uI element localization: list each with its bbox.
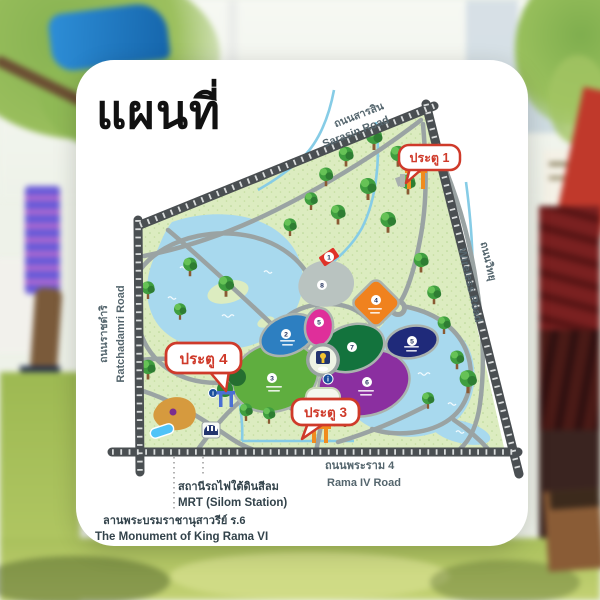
map-card: i i [76,60,528,546]
svg-text:8: 8 [320,282,324,289]
screenshot-root: { "title": "แผนที่", "map": { "roads": {… [0,0,600,600]
svg-text:i: i [212,391,214,398]
zone-number-marker: 5 [314,317,324,327]
zone-number-marker: 7 [347,342,357,352]
info-icon-2: i [209,389,218,398]
zone-number-marker: 1 [324,252,334,262]
ratchadamri-road-label-en: Ratchadamri Road [115,285,127,382]
landmark-labels: สถานีรถไฟใต้ดินสีลม MRT (Silom Station) … [95,479,287,543]
svg-text:3: 3 [270,375,274,382]
svg-text:i: i [327,377,329,384]
market-textiles [539,206,600,336]
clock-tower-landmark [306,343,340,377]
rama4-road-label-th: ถนนพระราม 4 [325,460,395,472]
lamp-pole [227,0,238,64]
zone-number-marker: 8 [317,280,327,290]
gate3-label: ประตู 3 [304,405,348,421]
mrt-label-th: สถานีรถไฟใต้ดินสีลม [178,479,279,493]
mrt-station-icon [202,422,220,438]
hanging-fabric [25,186,60,294]
gate4-label: ประตู 4 [180,351,229,369]
zone-number-marker: 2 [281,329,291,339]
rama4-road-label-en: Rama IV Road [327,477,401,489]
ratchadamri-road-label-th: ถนนราชดำริ [98,305,110,363]
zone-number-marker: 4 [371,295,381,305]
info-icon: i [323,374,333,384]
gate1-label: ประตู 1 [410,151,450,166]
wireless-road-label-th: ถนนวิทยุ [477,241,499,283]
zone-number-marker: 6 [362,377,372,387]
svg-text:6: 6 [365,379,369,386]
svg-text:5: 5 [410,338,414,345]
svg-text:2: 2 [284,331,288,338]
monument-label-th: ลานพระบรมราชานุสาวรีย์ ร.6 [103,514,245,528]
svg-text:5: 5 [317,319,321,326]
zone-number-marker: 5 [407,336,417,346]
mrt-label-en: MRT (Silom Station) [178,497,287,509]
sunlit-grass-patch [170,552,450,600]
planter-soil [549,488,600,509]
svg-text:4: 4 [374,297,378,304]
monument-label-en: The Monument of King Rama VI [95,531,268,543]
zone-number-marker: 3 [267,373,277,383]
page-title: แผนที่ [96,74,221,149]
svg-text:7: 7 [350,344,354,351]
svg-text:1: 1 [327,254,331,261]
